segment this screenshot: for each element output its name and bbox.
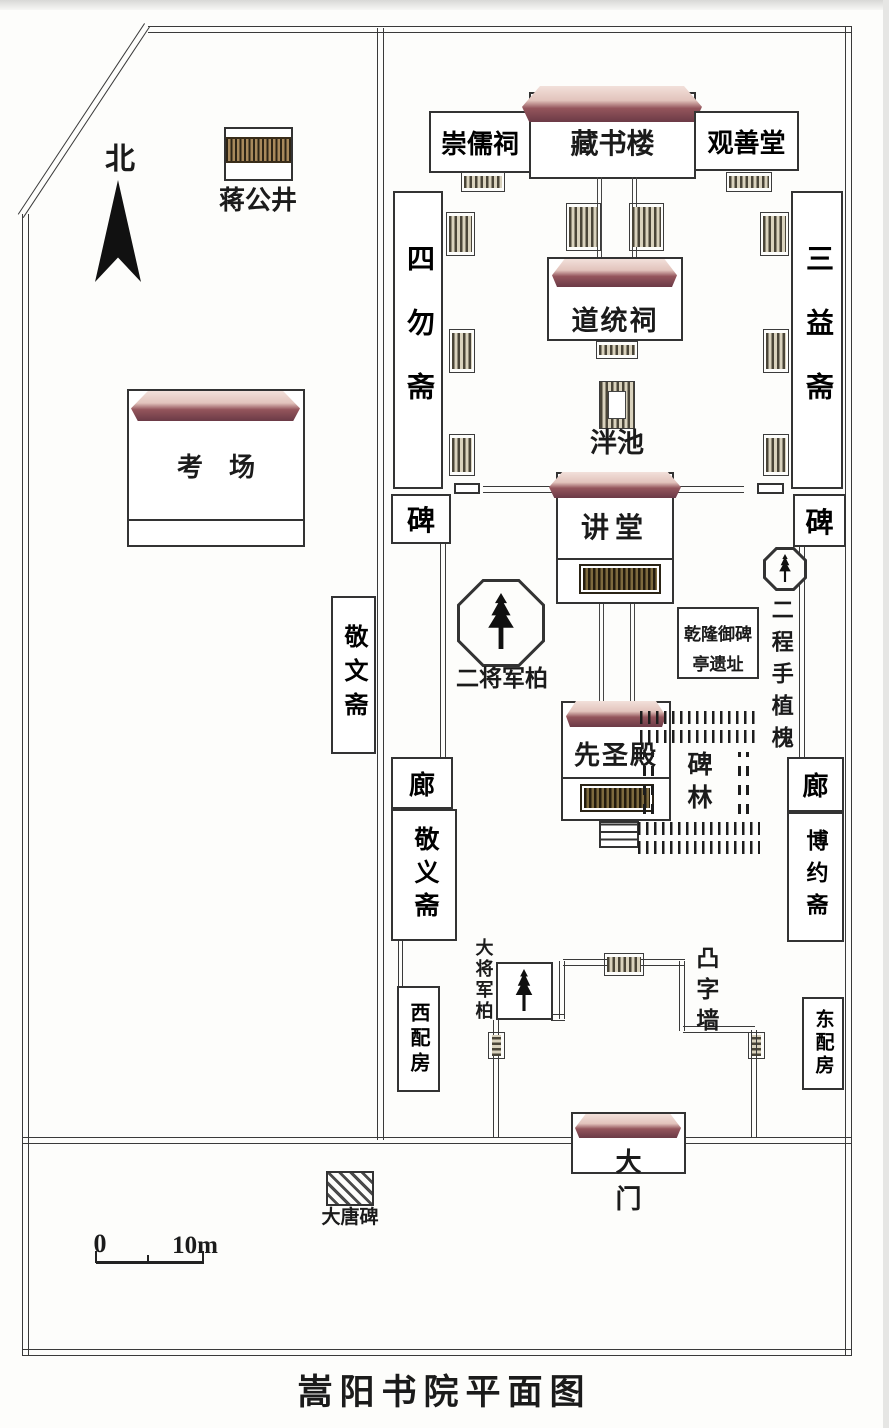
xianshengdian-stair-icon xyxy=(599,821,639,848)
outer-wall-left xyxy=(22,214,29,1356)
jingyizhai-label: 敬义斋 xyxy=(406,826,442,925)
north-arrow-icon xyxy=(95,180,141,282)
boyuezhai-building: 博约斋 xyxy=(787,812,844,942)
sanyizhai-label: 三益斋 xyxy=(797,244,837,436)
outer-wall-top xyxy=(148,26,852,33)
jiangtang-inner-line xyxy=(558,558,672,560)
inner-divider-wall xyxy=(377,28,384,1140)
dajiangjunbai-tree-icon xyxy=(511,969,537,1011)
crosswall-left xyxy=(483,486,559,493)
daotongci-steps-icon xyxy=(596,341,638,359)
stele-west-box: 碑 xyxy=(391,494,451,544)
kaochang-inner-line xyxy=(129,519,303,521)
tuziqiang-label: 凸字墙 xyxy=(692,944,717,1040)
scale-tick-right xyxy=(202,1251,204,1263)
guanshantang-building: 观善堂 xyxy=(694,111,799,171)
stele-west-label: 碑 xyxy=(407,499,435,539)
siwuzhai-building: 四勿斋 xyxy=(393,191,443,489)
chongruci-label: 崇儒祠 xyxy=(441,124,519,161)
panchi-label: 泮池 xyxy=(581,429,653,458)
panchi-pond-icon xyxy=(599,381,635,429)
tuziqiang-wall-v-2 xyxy=(559,961,565,1019)
jiangtang-roof-icon xyxy=(549,472,681,498)
guanshantang-label: 观善堂 xyxy=(707,123,785,160)
crosswall-stub-right xyxy=(757,483,784,494)
jiangtang-terrace-steps-icon xyxy=(579,564,661,594)
kaochang-roof-icon xyxy=(131,391,300,421)
boyuezhai-label: 博约斋 xyxy=(800,829,832,925)
photo-edge-right xyxy=(883,0,889,1428)
scale-bar xyxy=(96,1261,204,1264)
beilin-dash-col-1 xyxy=(643,752,646,814)
jingyizhai-building: 敬义斋 xyxy=(391,809,457,941)
tuziqiang-steps-left-icon xyxy=(488,1032,505,1059)
crosswall-right xyxy=(674,486,744,493)
photo-edge-top xyxy=(0,0,889,10)
jiangtang-label: 讲堂 xyxy=(558,506,672,546)
panchi-pond-inner xyxy=(608,391,626,419)
erjiangjunbai-octagon xyxy=(457,579,545,667)
dongpeifang-label: 东配房 xyxy=(810,1009,837,1078)
axis-path-left-2 xyxy=(599,604,604,702)
axis-steps-left-icon xyxy=(566,203,601,251)
beilin-dash-band-bottom xyxy=(638,822,760,854)
siwuzhai-steps-2-icon xyxy=(449,329,475,373)
tuziqiang-wall-h-2 xyxy=(563,959,607,966)
beilin-dash-col-4 xyxy=(746,752,749,814)
damen-roof-icon xyxy=(575,1114,681,1138)
outer-wall-chamfer xyxy=(18,23,150,218)
beilin-dash-col-3 xyxy=(738,752,741,814)
sanyizhai-steps-1-icon xyxy=(760,212,789,256)
corridor-east-label: 廊 xyxy=(802,766,828,803)
stele-east-label: 碑 xyxy=(805,501,833,541)
corridor-east-box: 廊 xyxy=(787,757,844,812)
jianggongjing-label: 蒋公井 xyxy=(206,187,310,215)
outer-wall-right xyxy=(845,26,852,1356)
datangbei-label: 大唐碑 xyxy=(316,1208,384,1229)
daotongci-building: 道统祠 xyxy=(547,257,683,341)
erjiangjunbai-label: 二将军柏 xyxy=(450,667,554,692)
kaochang-building: 考场 xyxy=(127,389,305,547)
ercheng-label: 二程手植槐 xyxy=(769,593,793,763)
plan-title: 嵩阳书院平面图 xyxy=(0,1374,889,1412)
tuziqiang-gate-icon xyxy=(604,953,644,976)
beilin-label: 碑林 xyxy=(684,748,711,820)
scale-tick-left xyxy=(95,1251,97,1263)
courtyard-south-wall xyxy=(22,1137,852,1144)
north-label: 北 xyxy=(98,144,142,176)
jingwenzhai-building: 敬文斋 xyxy=(331,596,376,754)
dajiangjunbai-label: 大将军柏 xyxy=(473,938,492,1022)
tuziqiang-wall-v-right xyxy=(751,1030,757,1137)
beilin-dash-band-top xyxy=(640,711,760,743)
scale-tick-mid xyxy=(147,1255,149,1263)
sanyizhai-steps-3-icon xyxy=(763,434,789,476)
qianlong-site-label-line1: 乾隆御碑 xyxy=(679,620,757,645)
daotongci-label: 道统祠 xyxy=(549,299,681,338)
xipeifang-building: 西配房 xyxy=(397,986,440,1092)
crosswall-stub-left xyxy=(454,483,480,494)
steps-below-guanshantang-icon xyxy=(726,172,772,192)
siwuzhai-label: 四勿斋 xyxy=(398,244,438,436)
well-hatch-band xyxy=(226,137,291,163)
beilin-dash-col-2 xyxy=(651,752,654,814)
cangshulou-roof-icon xyxy=(522,86,702,122)
qianlong-site-box: 乾隆御碑 亭遗址 xyxy=(677,607,759,679)
west-corridor-wall-2 xyxy=(398,941,403,986)
dongpeifang-building: 东配房 xyxy=(802,997,844,1090)
dajiangjunbai-box xyxy=(496,962,553,1020)
daotongci-roof-icon xyxy=(552,259,677,287)
axis-path-right-2 xyxy=(630,604,635,702)
corridor-west-box: 廊 xyxy=(391,757,453,809)
steps-below-chongruci-icon xyxy=(461,172,505,192)
scale-ten-label: 10m xyxy=(168,1232,222,1259)
qianlong-site-label-line2: 亭遗址 xyxy=(679,650,757,675)
sanyizhai-building: 三益斋 xyxy=(791,191,843,489)
damen-label: 大门 xyxy=(573,1142,684,1216)
outer-wall-bottom xyxy=(22,1349,852,1356)
west-corridor-wall xyxy=(440,544,446,757)
datangbei-stele-icon xyxy=(326,1171,374,1206)
damen-building: 大门 xyxy=(571,1112,686,1174)
xipeifang-label: 西配房 xyxy=(404,1002,433,1077)
tuziqiang-wall-v-3 xyxy=(679,961,685,1031)
sanyizhai-steps-2-icon xyxy=(763,329,789,373)
cangshulou-label: 藏书楼 xyxy=(529,130,696,160)
scale-zero-label: 0 xyxy=(88,1230,112,1258)
kaochang-label: 考场 xyxy=(129,447,303,484)
siwuzhai-steps-3-icon xyxy=(449,434,475,476)
axis-steps-right-icon xyxy=(629,203,664,251)
songyang-academy-floor-plan: 北 蒋公井 考场 敬文斋 崇儒祠 藏书楼 观善堂 四勿斋 三益斋 道统祠 xyxy=(0,0,889,1428)
ercheng-tree-octagon xyxy=(763,547,807,591)
corridor-west-label: 廊 xyxy=(409,765,435,802)
well-icon xyxy=(224,127,293,181)
siwuzhai-steps-1-icon xyxy=(446,212,475,256)
jingwenzhai-label: 敬文斋 xyxy=(336,624,371,726)
chongruci-building: 崇儒祠 xyxy=(429,111,531,173)
stele-east-box: 碑 xyxy=(793,494,846,547)
